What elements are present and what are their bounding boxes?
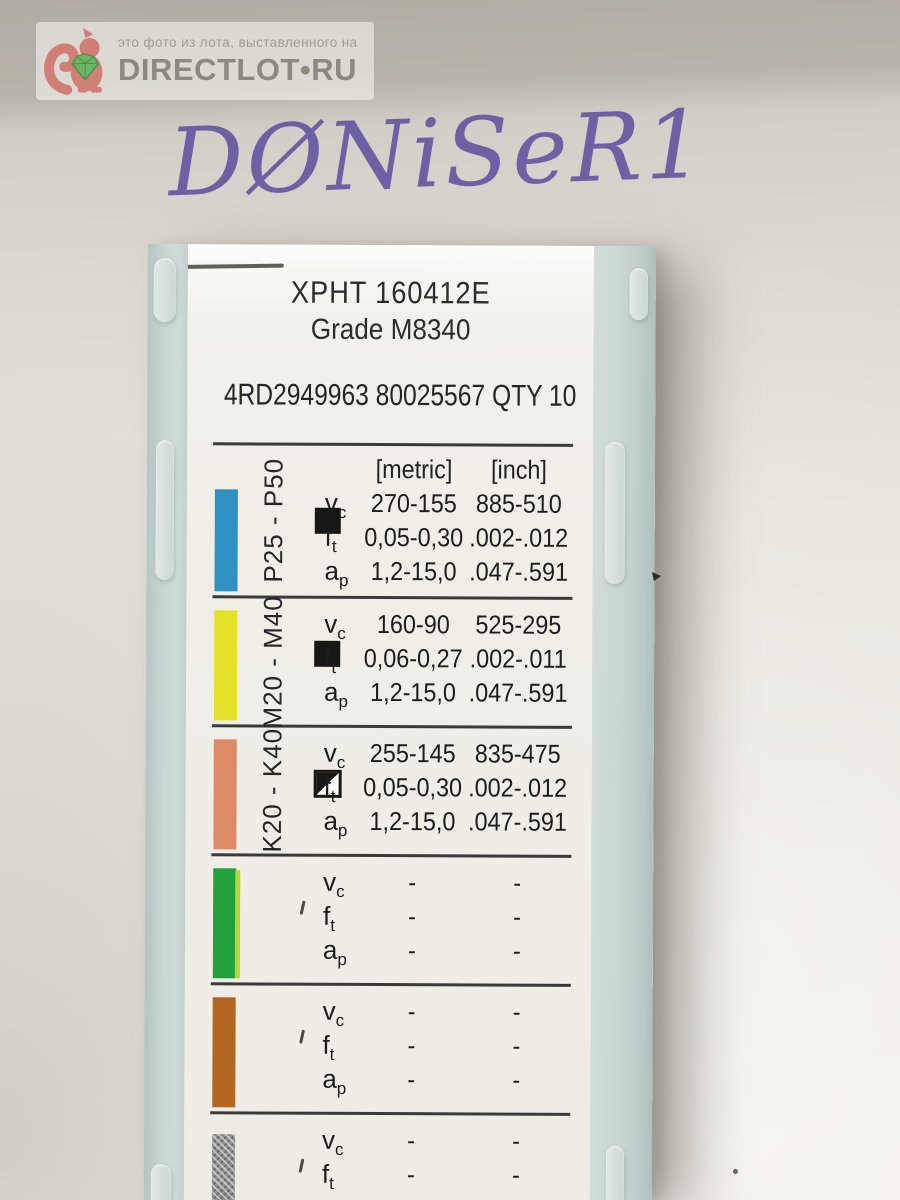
ap-metric-value: 1,2-15,0 — [360, 554, 468, 588]
ap-inch-value: - — [462, 1062, 570, 1096]
watermark-badge: это фото из лота, выставленного на DIREC… — [36, 22, 374, 100]
table-row-m: M20 - M40 vc 160-90 525-295 ft 0,06-0,27… — [212, 598, 573, 729]
vc-inch-value: - — [463, 865, 571, 899]
ap-metric-value: - — [357, 1191, 465, 1200]
param-ap-label: ap — [324, 675, 348, 719]
vc-inch-value: 835-475 — [464, 736, 572, 770]
f-metric-value: - — [358, 899, 466, 933]
f-inch-value: .002-.011 — [464, 641, 572, 675]
box-left-edge — [144, 244, 188, 1200]
f-inch-value: - — [463, 899, 571, 933]
f-inch-value: - — [462, 1028, 570, 1062]
ap-metric-value: - — [358, 933, 466, 967]
box-clip-tab — [154, 258, 176, 322]
vc-inch-value: - — [462, 1123, 570, 1157]
inch-unit-header: [inch] — [465, 452, 573, 486]
f-metric-value: - — [357, 1157, 465, 1191]
vc-metric-value: 160-90 — [359, 607, 467, 641]
product-designation: XPHT 160412E — [212, 274, 569, 312]
table-row-empty: vc - - ft - - ap - - — [210, 1114, 571, 1200]
ap-metric-value: - — [357, 1062, 465, 1096]
ap-metric-value: 1,2-15,0 — [359, 675, 467, 709]
table-row-k: K20 - K40 vc 255-145 835-475 ft 0,05-0,3… — [211, 727, 572, 858]
table-row-empty: vc - - ft - - ap - - — [211, 856, 572, 987]
product-grade: Grade M8340 — [208, 313, 574, 348]
ap-inch-value: - — [463, 933, 571, 967]
vc-metric-value: 255-145 — [359, 736, 467, 770]
f-metric-value: 0,06-0,27 — [359, 641, 467, 675]
watermark-caption: это фото из лота, выставленного на — [118, 35, 358, 50]
box-clip-tab — [630, 268, 648, 320]
vc-metric-value: - — [357, 1123, 465, 1157]
f-inch-value: - — [462, 1157, 570, 1191]
f-inch-value: .002-.012 — [464, 770, 572, 804]
vc-metric-value: - — [358, 994, 466, 1028]
vc-inch-value: 885-510 — [465, 486, 573, 520]
handwritten-username: DØNiSeR1 — [166, 91, 709, 219]
vc-inch-value: - — [463, 994, 571, 1028]
watermark-text: это фото из лота, выставленного на DIREC… — [118, 35, 358, 88]
vc-inch-value: 525-295 — [464, 607, 572, 641]
product-label: XPHT 160412E Grade M8340 4RD2949963 8002… — [184, 244, 594, 1200]
param-ap-label: ap — [324, 554, 348, 598]
ap-metric-value: 1,2-15,0 — [358, 804, 466, 838]
ap-inch-value: .047-.591 — [464, 675, 572, 709]
watermark-site-name: DIRECTLOT•RU — [118, 52, 358, 88]
squirrel-with-gem-icon — [40, 25, 116, 97]
param-ap-label: ap — [322, 1062, 346, 1106]
vc-metric-value: - — [358, 865, 466, 899]
pen-mark — [184, 264, 284, 269]
cutting-data-table: P25 - P50 [metric] [inch] vc 270-155 885… — [210, 442, 573, 1200]
order-code-line: 4RD2949963 80025567 QTY 10 — [224, 378, 557, 413]
param-ap-label: ap — [322, 1191, 346, 1200]
insert-box: XPHT 160412E Grade M8340 4RD2949963 8002… — [144, 244, 656, 1200]
metric-unit-header: [metric] — [360, 452, 468, 486]
box-clip-tab — [151, 1164, 171, 1200]
box-right-edge — [590, 246, 656, 1200]
ap-inch-value: .047-.591 — [463, 804, 571, 838]
table-row-empty: vc - - ft - - ap - - — [210, 985, 571, 1116]
vc-metric-value: 270-155 — [360, 486, 468, 520]
ap-inch-value: .047-.591 — [465, 554, 573, 588]
f-metric-value: - — [357, 1028, 465, 1062]
table-row-p: P25 - P50 [metric] [inch] vc 270-155 885… — [212, 445, 573, 600]
box-clip-tab — [606, 1146, 624, 1200]
dust-speck — [733, 1169, 738, 1174]
param-ap-label: ap — [323, 933, 347, 977]
f-inch-value: .002-.012 — [465, 520, 573, 554]
box-clip-tab — [156, 440, 175, 580]
f-metric-value: 0,05-0,30 — [359, 770, 467, 804]
photo-backdrop: это фото из лота, выставленного на DIREC… — [0, 0, 900, 1200]
param-ap-label: ap — [323, 804, 347, 848]
ap-inch-value: - — [462, 1191, 570, 1200]
f-metric-value: 0,05-0,30 — [360, 520, 468, 554]
box-clip-tab — [605, 442, 626, 584]
